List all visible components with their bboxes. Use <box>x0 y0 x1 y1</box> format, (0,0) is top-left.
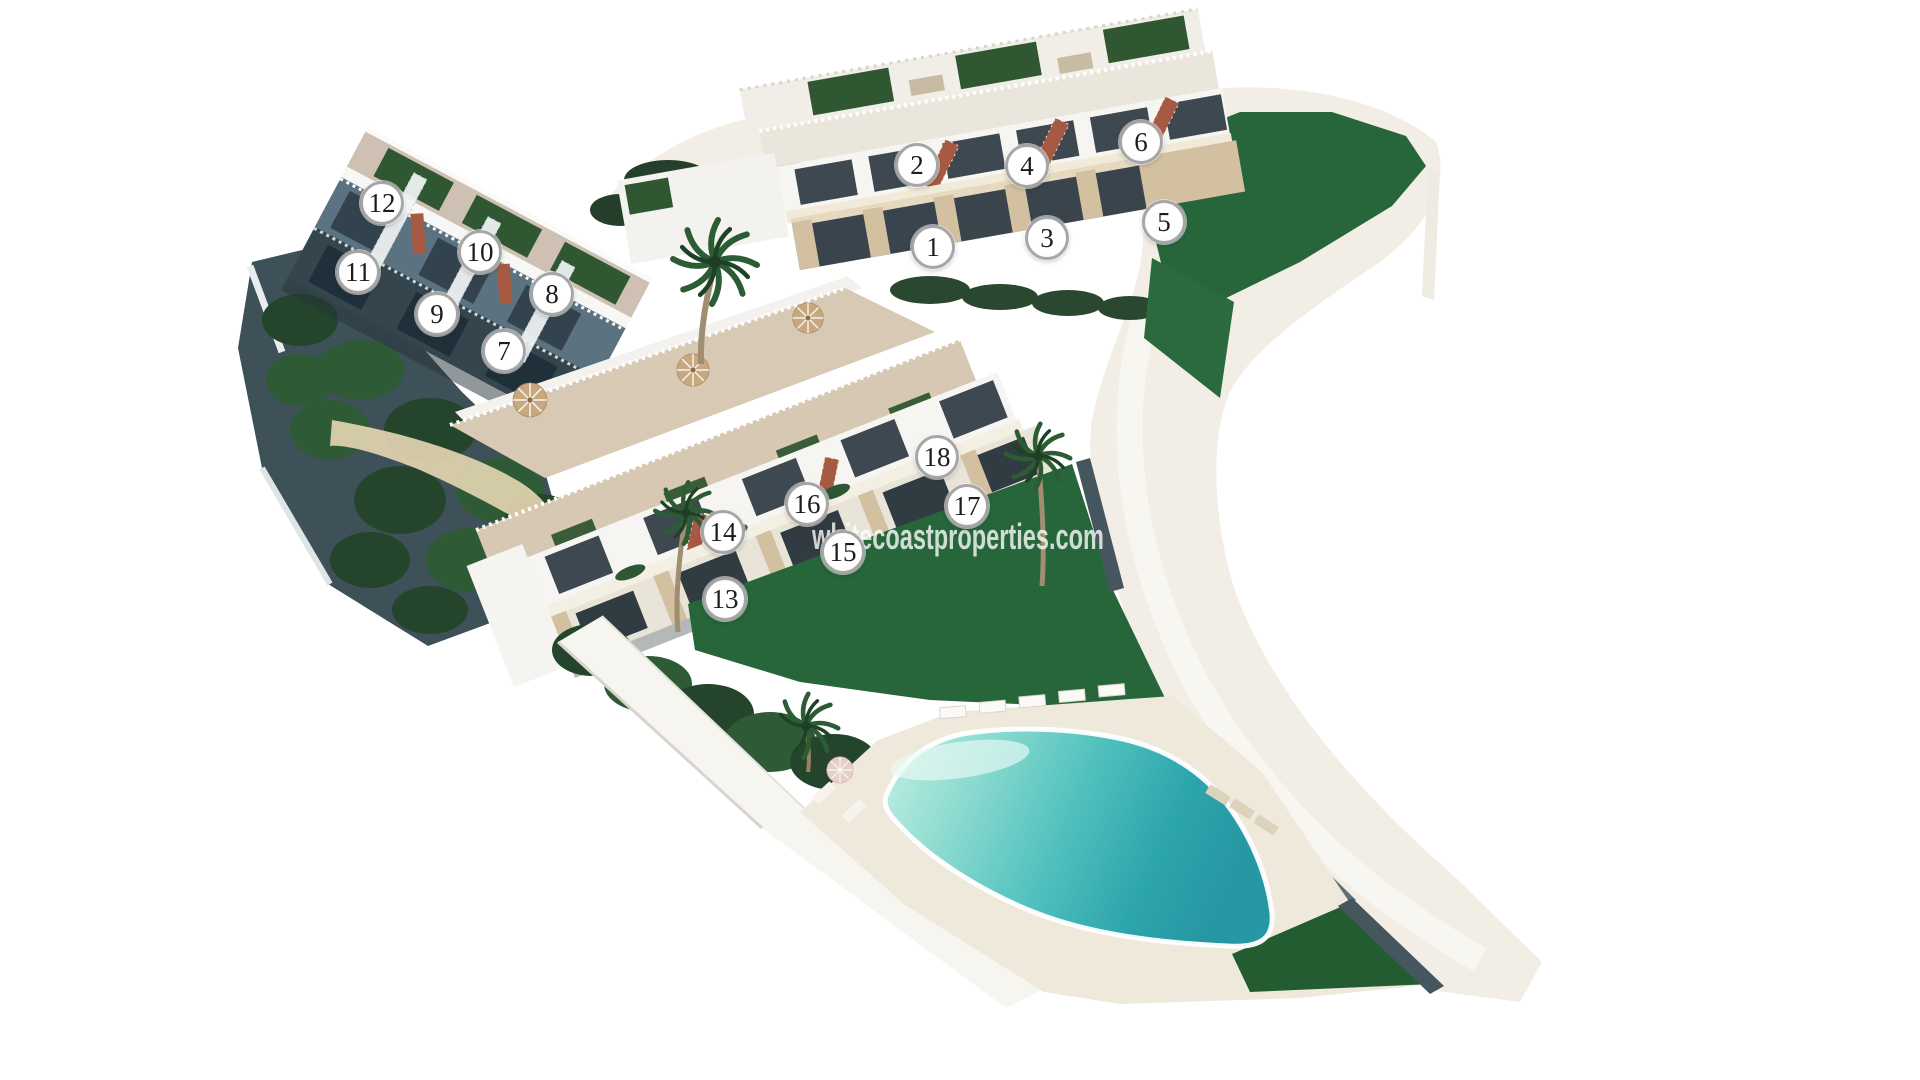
unit-marker-8[interactable]: 8 <box>530 272 574 316</box>
unit-marker-7[interactable]: 7 <box>482 329 526 373</box>
unit-marker-11[interactable]: 11 <box>336 250 380 294</box>
unit-marker-18[interactable]: 18 <box>915 435 959 479</box>
unit-marker-13[interactable]: 13 <box>703 577 747 621</box>
unit-marker-label: 1 <box>926 234 940 261</box>
unit-marker-12[interactable]: 12 <box>360 181 404 225</box>
unit-marker-label: 12 <box>369 190 396 217</box>
unit-marker-1[interactable]: 1 <box>911 225 955 269</box>
unit-marker-label: 16 <box>794 491 821 518</box>
unit-marker-3[interactable]: 3 <box>1025 216 1069 260</box>
unit-marker-label: 11 <box>345 259 371 286</box>
unit-marker-5[interactable]: 5 <box>1142 200 1186 244</box>
unit-marker-label: 17 <box>954 493 981 520</box>
unit-marker-2[interactable]: 2 <box>895 143 939 187</box>
unit-marker-label: 13 <box>712 586 739 613</box>
unit-marker-label: 4 <box>1020 153 1034 180</box>
unit-marker-label: 2 <box>910 152 924 179</box>
unit-marker-14[interactable]: 14 <box>701 510 745 554</box>
unit-marker-label: 10 <box>467 239 494 266</box>
site-plan-canvas: whitecoastproperties.com 1 2 3 4 5 6 7 8… <box>0 0 1920 1080</box>
unit-marker-15[interactable]: 15 <box>821 530 865 574</box>
unit-markers-layer: 1 2 3 4 5 6 7 8 9 10 11 12 13 14 15 16 1… <box>0 0 1920 1080</box>
unit-marker-label: 18 <box>924 444 951 471</box>
unit-marker-10[interactable]: 10 <box>458 230 502 274</box>
unit-marker-label: 7 <box>497 338 511 365</box>
unit-marker-17[interactable]: 17 <box>945 484 989 528</box>
unit-marker-9[interactable]: 9 <box>415 292 459 336</box>
unit-marker-label: 5 <box>1157 209 1171 236</box>
unit-marker-6[interactable]: 6 <box>1119 120 1163 164</box>
unit-marker-label: 8 <box>545 281 559 308</box>
unit-marker-label: 14 <box>710 519 737 546</box>
unit-marker-16[interactable]: 16 <box>785 482 829 526</box>
unit-marker-label: 15 <box>830 539 857 566</box>
unit-marker-4[interactable]: 4 <box>1005 144 1049 188</box>
unit-marker-label: 6 <box>1134 129 1148 156</box>
unit-marker-label: 3 <box>1040 225 1054 252</box>
unit-marker-label: 9 <box>430 301 444 328</box>
